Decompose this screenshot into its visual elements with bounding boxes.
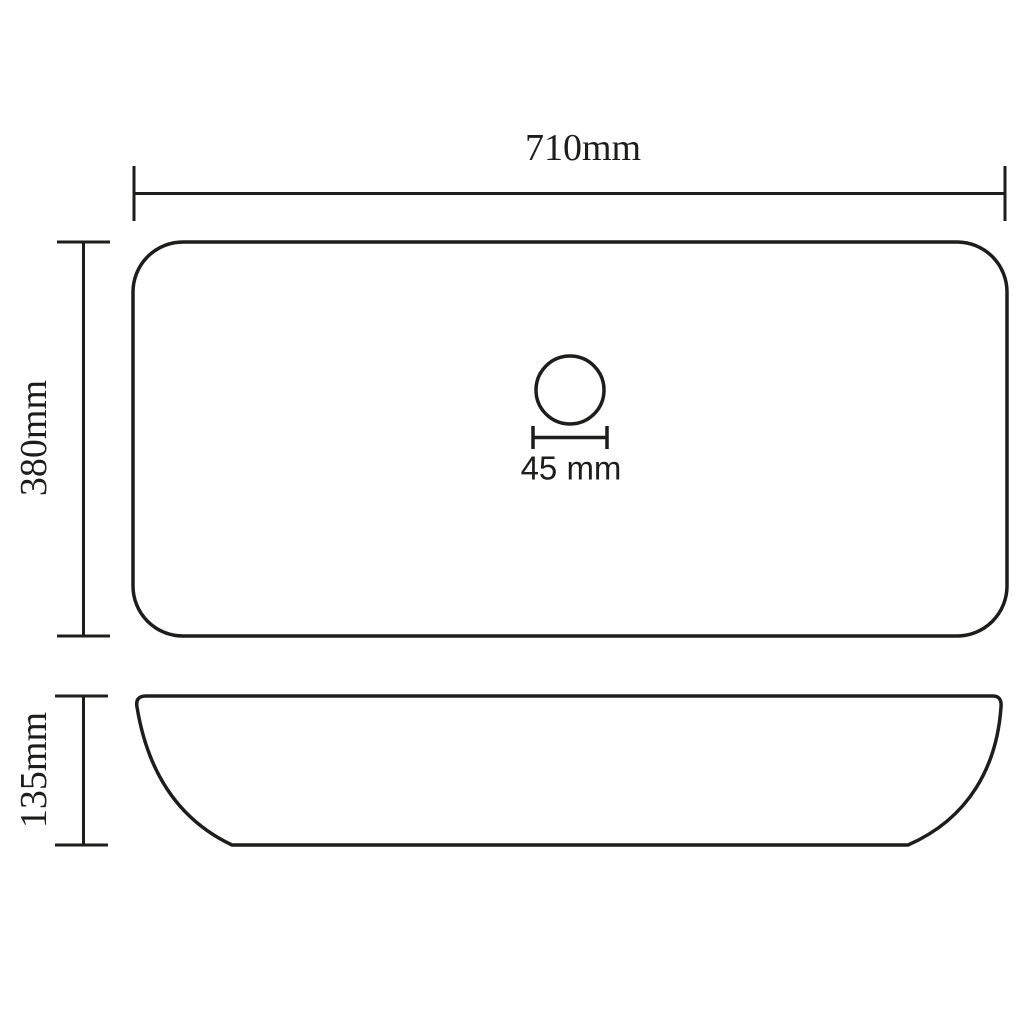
technical-drawing-basin: 710mm 380mm 45 mm 135mm (0, 0, 1024, 1024)
height-dimension-line (55, 696, 108, 845)
drain-hole-circle (536, 356, 604, 424)
width-dimension-line (134, 166, 1005, 221)
drain-dimension-line (533, 426, 607, 449)
width-dimension-label: 710mm (525, 129, 641, 167)
side-view-outline (137, 696, 1001, 845)
drain-dimension-label: 45 mm (521, 452, 622, 485)
depth-dimension-label: 380mm (15, 380, 53, 496)
depth-dimension-line (57, 242, 110, 636)
height-dimension-label: 135mm (15, 712, 53, 828)
drawing-linework (0, 0, 1024, 1024)
